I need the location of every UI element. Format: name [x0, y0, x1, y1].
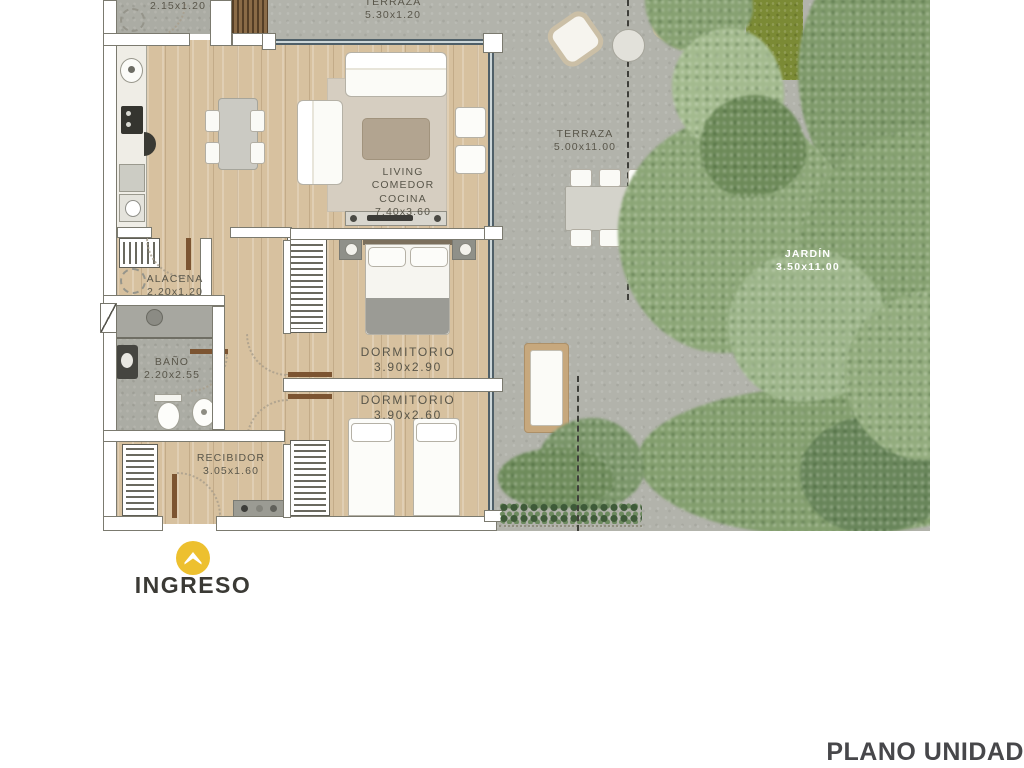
- closet: [287, 234, 327, 333]
- wall: [216, 516, 497, 531]
- console-knob-icon: [270, 505, 277, 512]
- room-dims: 5.00x11.00: [550, 141, 620, 154]
- hedge-edging: [499, 521, 642, 527]
- dining-chair: [250, 142, 265, 164]
- outdoor-chair: [570, 169, 592, 187]
- bed-blanket: [366, 298, 449, 334]
- chevron-up-marker-icon: [176, 541, 210, 575]
- room-dims: 2.15x1.20: [148, 0, 208, 13]
- room-label-dormitorio-1: DORMITORIO 3.90x2.90: [354, 345, 462, 376]
- wall: [103, 516, 163, 531]
- wall: [103, 430, 285, 442]
- dining-chair: [250, 110, 265, 132]
- wall: [262, 33, 276, 50]
- wall: [103, 33, 190, 46]
- boundary-dashed-line: [577, 376, 579, 531]
- door-leaf: [288, 394, 332, 399]
- room-dims: 2.20x2.55: [138, 369, 206, 382]
- room-name: TERRAZA: [358, 0, 428, 9]
- cooktop: [121, 106, 143, 134]
- room-label-living: LIVING COMEDOR COCINA 7.40x3.60: [365, 166, 441, 220]
- bathroom-window: [100, 303, 117, 333]
- dishwasher: [119, 164, 145, 192]
- room-dims: 3.50x11.00: [772, 261, 844, 274]
- room-name: COCINA: [365, 193, 441, 206]
- wall: [210, 0, 232, 46]
- wall: [484, 226, 503, 240]
- burner-icon: [126, 122, 131, 127]
- shower: [117, 303, 225, 339]
- room-name: TERRAZA: [550, 128, 620, 141]
- room-name: LIVING: [365, 166, 441, 179]
- wall: [103, 0, 117, 524]
- room-name: ALACENA: [144, 273, 206, 286]
- page-title: PLANO UNIDAD: [824, 738, 1024, 767]
- washer-dashed-icon: [120, 268, 146, 294]
- wall: [483, 33, 503, 53]
- room-dims: 3.90x2.60: [354, 408, 462, 423]
- room-label-bano: BAÑO 2.20x2.55: [138, 356, 206, 383]
- glass-wall: [488, 45, 494, 516]
- tree-canopy: [700, 95, 806, 197]
- armchair: [455, 145, 486, 174]
- wall: [283, 444, 291, 518]
- room-label-patio: 2.15x1.20: [148, 0, 208, 13]
- pillow: [416, 423, 457, 442]
- console-knob-icon: [350, 215, 357, 222]
- wall: [230, 227, 292, 238]
- wall: [117, 227, 152, 238]
- room-name: BAÑO: [138, 356, 206, 369]
- pillow: [410, 247, 448, 267]
- room-label-terraza: TERRAZA 5.00x11.00: [550, 128, 620, 155]
- dining-chair: [205, 142, 220, 164]
- burner-icon: [126, 111, 131, 116]
- tree-canopy: [498, 448, 614, 508]
- room-dims: 3.05x1.60: [192, 465, 270, 478]
- faucet-icon: [128, 66, 135, 73]
- room-name: DORMITORIO: [354, 393, 462, 408]
- room-name: JARDÍN: [772, 248, 844, 261]
- wood-deck-slats: [232, 0, 268, 34]
- room-name: COMEDOR: [365, 179, 441, 192]
- sofa: [345, 52, 447, 97]
- closet: [290, 440, 330, 516]
- toilet: [154, 394, 182, 402]
- sofa-chaise: [297, 100, 343, 185]
- door-leaf: [288, 372, 332, 377]
- door-leaf: [186, 238, 191, 270]
- coffee-table: [362, 118, 430, 160]
- wall: [212, 306, 225, 430]
- room-dims: 3.90x2.90: [354, 360, 462, 375]
- console-knob-icon: [241, 505, 248, 512]
- room-name: RECIBIDOR: [192, 452, 270, 465]
- armchair: [455, 107, 486, 138]
- round-side-table: [612, 29, 645, 62]
- room-label-dormitorio-2: DORMITORIO 3.90x2.60: [354, 393, 462, 424]
- washer-dashed-icon: [120, 8, 145, 32]
- bidet-drain-icon: [201, 409, 207, 415]
- room-dims: 2.20x1.20: [144, 286, 206, 299]
- console-knob-icon: [256, 505, 263, 512]
- room-name: DORMITORIO: [354, 345, 462, 360]
- floor-plan: 2.15x1.20 TERRAZA 5.30x1.20 LIVING COMED…: [0, 0, 1024, 768]
- basin-icon: [121, 353, 133, 368]
- glass-wall: [276, 39, 484, 45]
- toilet-bowl: [157, 402, 180, 430]
- entry-door-leaf: [172, 474, 177, 518]
- room-dims: 7.40x3.60: [365, 206, 441, 219]
- closet: [122, 444, 158, 516]
- room-dims: 5.30x1.20: [358, 9, 428, 22]
- shower-head-icon: [146, 309, 163, 326]
- dining-chair: [205, 110, 220, 132]
- wall: [283, 240, 291, 334]
- room-label-jardin: JARDÍN 3.50x11.00: [772, 248, 844, 275]
- room-label-recibidor: RECIBIDOR 3.05x1.60: [192, 452, 270, 479]
- outdoor-chair: [599, 169, 621, 187]
- plan-clip-area: 2.15x1.20 TERRAZA 5.30x1.20 LIVING COMED…: [100, 0, 930, 531]
- wall: [283, 378, 503, 392]
- pillow: [368, 247, 406, 267]
- wall: [290, 228, 503, 240]
- pillow: [351, 423, 392, 442]
- entrance-label: INGRESO: [128, 572, 258, 599]
- entrance-marker: [176, 541, 210, 575]
- room-label-alacena: ALACENA 2.20x1.20: [144, 273, 206, 300]
- bench-cushion: [530, 350, 563, 426]
- room-label-terraza-top: TERRAZA 5.30x1.20: [358, 0, 428, 23]
- lamp-icon: [345, 243, 358, 256]
- outdoor-chair: [570, 229, 592, 247]
- washer-drum-icon: [125, 200, 141, 217]
- lamp-icon: [459, 243, 472, 256]
